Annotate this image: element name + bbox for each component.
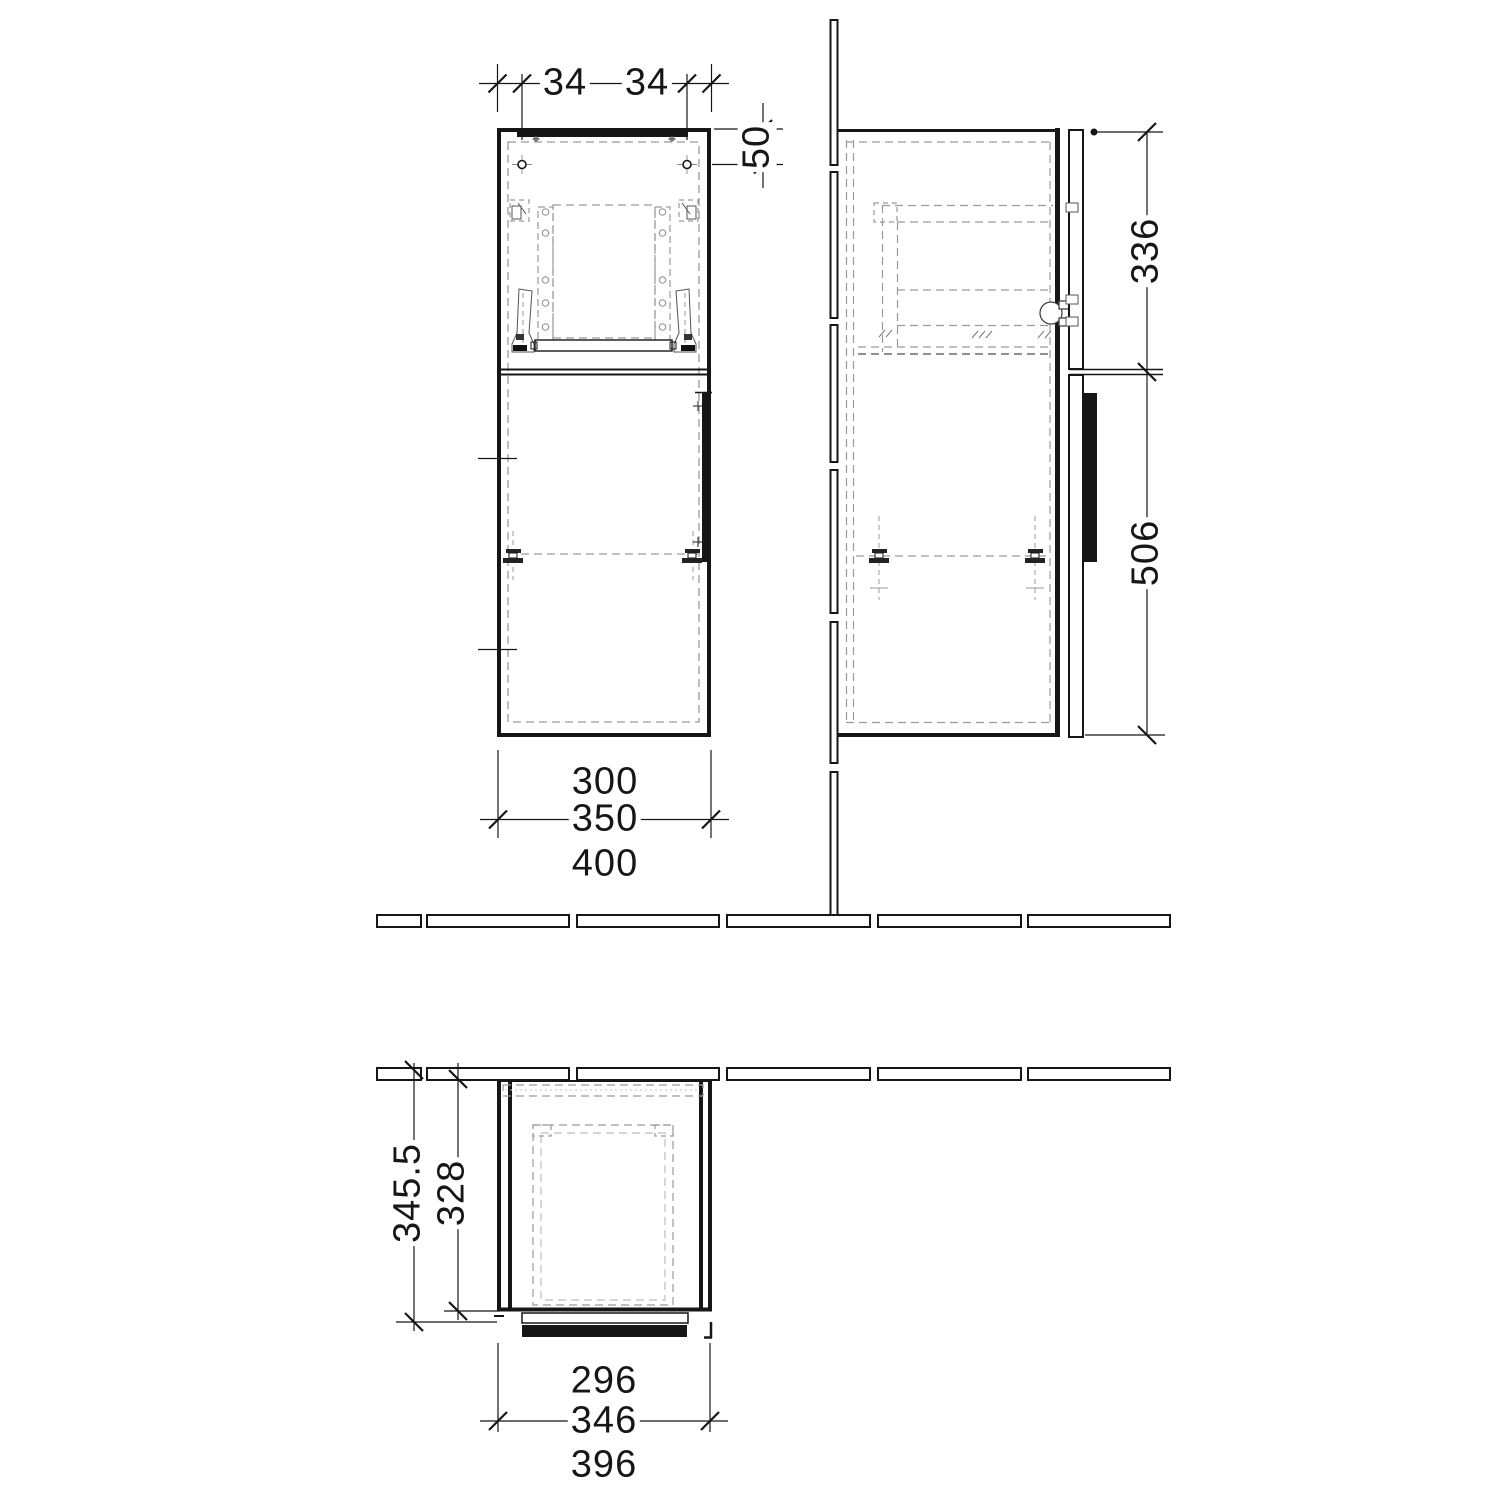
front-view: [478, 128, 712, 735]
drawing-linework: [0, 0, 1500, 1500]
dim-label-front-400: 400: [569, 845, 641, 884]
front-pullout-rail: [531, 340, 676, 351]
side-view: [831, 20, 1098, 915]
side-inner-dashed: [846, 140, 1050, 723]
side-hatch-marks: [879, 330, 1051, 338]
dim-label-front-350: 350: [569, 800, 641, 839]
side-drawer-dashed: [858, 203, 1053, 354]
plan-rail-dashed: [503, 1085, 703, 1096]
plan-view: [494, 1080, 712, 1338]
dim-label-front-right-50: 50: [738, 122, 777, 172]
dim-label-front-300: 300: [569, 763, 641, 802]
plan-side-right-inner: [699, 1080, 703, 1311]
plan-side-right-outer: [708, 1080, 712, 1311]
front-mounting-rail: [517, 128, 688, 137]
side-door-lower: [1069, 375, 1083, 737]
dim-label-front-top-left: 34: [540, 64, 590, 103]
dim-label-plan-345-5: 345.5: [389, 1140, 428, 1246]
technical-drawing-canvas: 34 34 50 300 350 400 336 506 345.5 328 2…: [0, 0, 1500, 1500]
front-carcass-outline: [499, 130, 709, 735]
dim-label-plan-296: 296: [568, 1362, 640, 1401]
front-handle: [702, 393, 711, 562]
plan-wall-lower: [377, 1068, 1170, 1080]
dim-label-plan-328: 328: [433, 1157, 472, 1229]
plan-side-left-inner: [508, 1080, 512, 1311]
plan-side-left-outer: [497, 1080, 501, 1311]
plan-right-hook: [704, 1322, 712, 1338]
side-door-upper: [1069, 130, 1083, 369]
plan-door: [522, 1313, 688, 1323]
dim-label-side-336: 336: [1127, 215, 1166, 287]
side-wall-line: [831, 20, 838, 915]
side-shelf-bracket-right: [1025, 516, 1045, 600]
dim-label-plan-346: 346: [568, 1402, 640, 1441]
side-shelf-bracket-left: [869, 516, 889, 600]
dim-label-side-506: 506: [1127, 517, 1166, 589]
dim-label-plan-396: 396: [568, 1446, 640, 1485]
plan-handle: [522, 1325, 687, 1337]
side-handle: [1083, 393, 1097, 562]
dim-label-front-top-right: 34: [622, 64, 672, 103]
plan-dimensions: [396, 1061, 728, 1432]
plan-wall-upper: [377, 915, 1170, 927]
plan-drawer-dashed: [533, 1125, 673, 1305]
side-carcass-front-edge: [1055, 128, 1060, 737]
